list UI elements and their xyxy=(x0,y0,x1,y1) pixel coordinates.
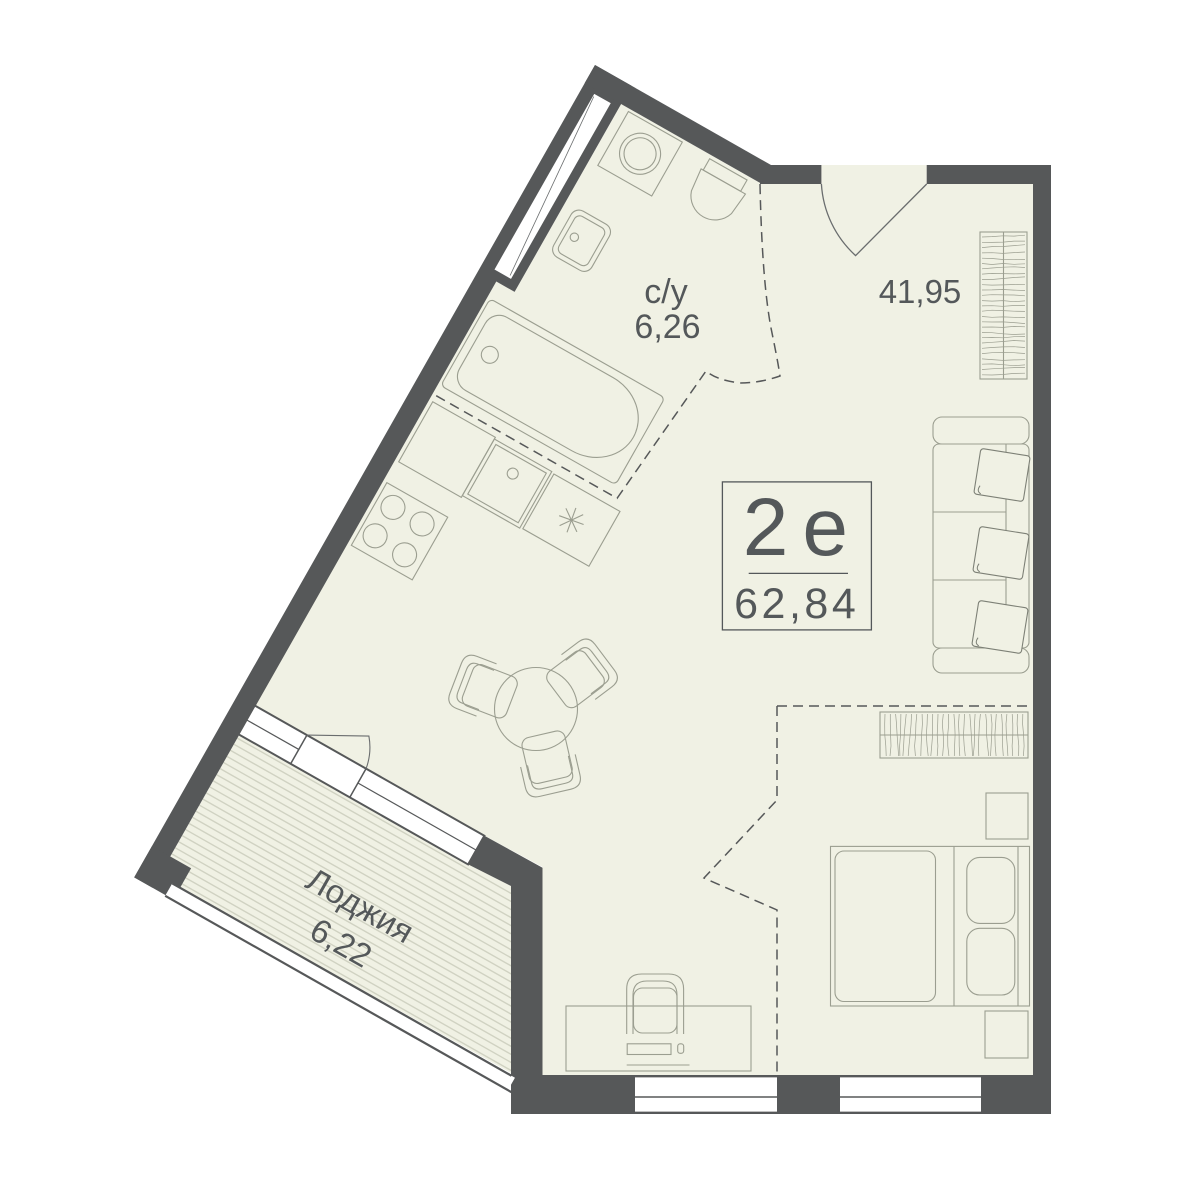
svg-text:с/у: с/у xyxy=(644,273,687,311)
svg-text:41,95: 41,95 xyxy=(879,273,962,310)
svg-text:62,84: 62,84 xyxy=(734,580,859,628)
svg-text:6,26: 6,26 xyxy=(634,308,700,346)
svg-text:2е: 2е xyxy=(743,482,862,573)
